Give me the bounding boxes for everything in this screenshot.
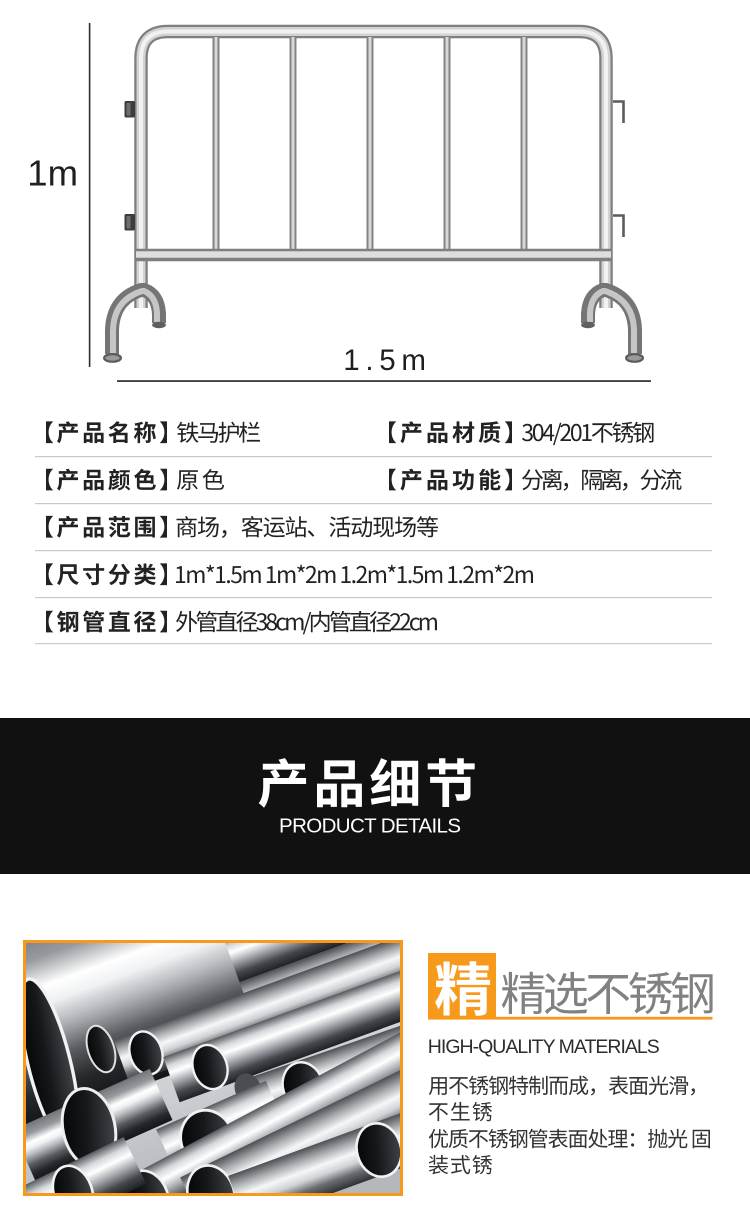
svg-text:1m: 1m (27, 153, 78, 194)
svg-text:1.5m: 1.5m (343, 344, 431, 377)
svg-text:HIGH-QUALITY MATERIALS: HIGH-QUALITY MATERIALS (428, 1036, 660, 1058)
svg-text:PRODUCT DETAILS: PRODUCT DETAILS (279, 815, 461, 838)
